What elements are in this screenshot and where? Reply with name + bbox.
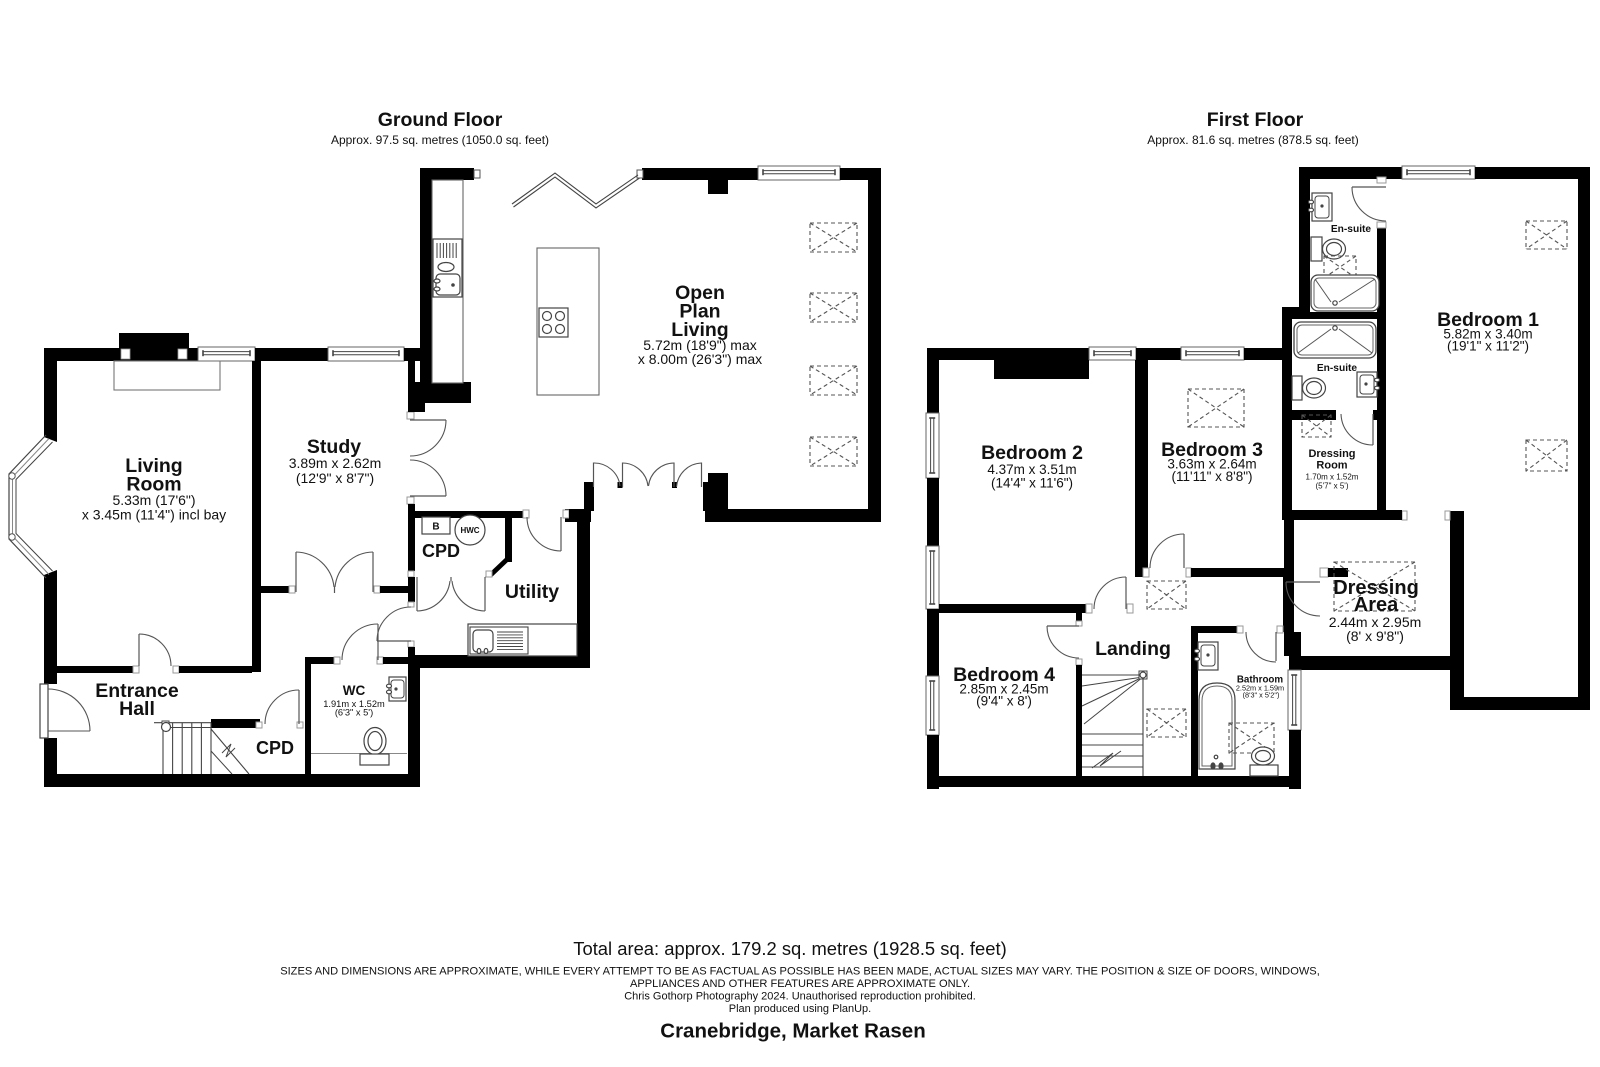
svg-text:En-suite: En-suite: [1331, 224, 1372, 235]
svg-text:First Floor: First Floor: [1207, 109, 1304, 131]
svg-text:Room: Room: [1316, 460, 1347, 472]
svg-text:(14'4" x 11'6"): (14'4" x 11'6"): [991, 476, 1073, 491]
svg-text:CPD: CPD: [422, 541, 460, 561]
svg-text:WC: WC: [343, 683, 366, 698]
svg-text:Utility: Utility: [505, 581, 559, 603]
svg-text:Hall: Hall: [119, 698, 155, 720]
svg-text:Area: Area: [1354, 594, 1399, 616]
svg-text:(8'3" x 5'2"): (8'3" x 5'2"): [1243, 690, 1280, 699]
svg-text:Bedroom 2: Bedroom 2: [981, 442, 1083, 464]
svg-text:Ground Floor: Ground Floor: [378, 109, 503, 131]
svg-text:(6'3" x 5'): (6'3" x 5'): [335, 708, 373, 718]
svg-text:HWC: HWC: [460, 526, 479, 535]
svg-text:Approx. 97.5 sq. metres (1050.: Approx. 97.5 sq. metres (1050.0 sq. feet…: [331, 133, 549, 147]
svg-text:En-suite: En-suite: [1317, 363, 1358, 374]
svg-text:APPLIANCES AND OTHER FEATURES: APPLIANCES AND OTHER FEATURES ARE APPROX…: [630, 978, 970, 990]
svg-text:B: B: [432, 522, 439, 533]
svg-text:Landing: Landing: [1095, 638, 1171, 660]
svg-text:Approx. 81.6 sq. metres (878.5: Approx. 81.6 sq. metres (878.5 sq. feet): [1147, 133, 1358, 147]
svg-text:(12'9" x 8'7"): (12'9" x 8'7"): [296, 470, 374, 486]
svg-text:SIZES AND DIMENSIONS ARE APPRO: SIZES AND DIMENSIONS ARE APPROXIMATE, WH…: [280, 966, 1320, 978]
svg-text:CPD: CPD: [256, 738, 294, 758]
svg-text:1.70m x 1.52m: 1.70m x 1.52m: [1306, 473, 1359, 482]
svg-text:Plan produced using PlanUp.: Plan produced using PlanUp.: [729, 1003, 871, 1015]
svg-text:Chris Gothorp Photography 2024: Chris Gothorp Photography 2024. Unauthor…: [624, 991, 976, 1003]
svg-text:(11'11" x 8'8"): (11'11" x 8'8"): [1171, 469, 1252, 484]
svg-text:(5'7" x 5'): (5'7" x 5'): [1315, 482, 1348, 491]
svg-text:3.89m x 2.62m: 3.89m x 2.62m: [289, 455, 382, 471]
svg-text:Cranebridge, Market Rasen: Cranebridge, Market Rasen: [660, 1020, 925, 1043]
svg-text:(19'1" x 11'2"): (19'1" x 11'2"): [1447, 339, 1529, 354]
svg-text:x 8.00m (26'3") max: x 8.00m (26'3") max: [638, 351, 762, 367]
svg-text:(8' x 9'8"): (8' x 9'8"): [1346, 628, 1404, 644]
svg-text:(9'4" x 8'): (9'4" x 8'): [976, 694, 1032, 709]
svg-text:x 3.45m (11'4") incl bay: x 3.45m (11'4") incl bay: [82, 507, 226, 523]
svg-text:Total area: approx. 179.2 sq.: Total area: approx. 179.2 sq. metres (19…: [573, 938, 1006, 959]
svg-text:Dressing: Dressing: [1308, 448, 1355, 460]
